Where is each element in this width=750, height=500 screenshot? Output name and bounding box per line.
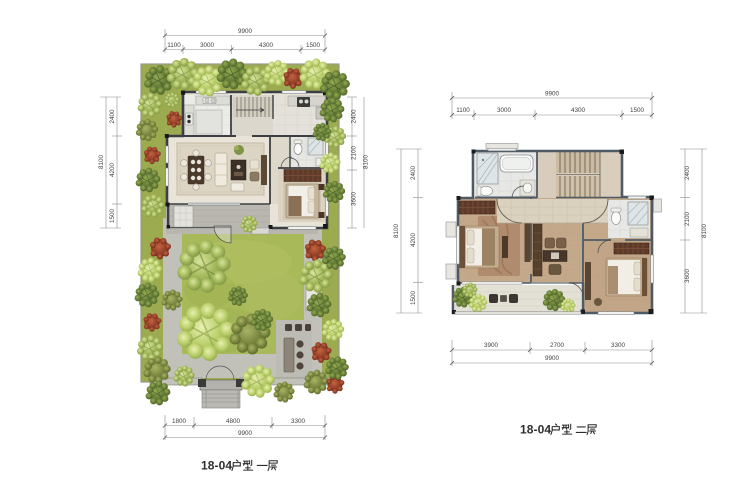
svg-text:2400: 2400: [351, 109, 358, 124]
svg-text:3300: 3300: [291, 418, 306, 425]
svg-text:1500: 1500: [306, 42, 321, 49]
svg-text:9900: 9900: [545, 91, 560, 98]
svg-text:3300: 3300: [611, 342, 626, 349]
svg-text:18-04: 18-04: [201, 459, 232, 473]
svg-text:4300: 4300: [571, 107, 586, 114]
svg-text:1100: 1100: [167, 42, 181, 49]
svg-text:2400: 2400: [109, 109, 116, 124]
svg-text:1500: 1500: [630, 107, 645, 114]
svg-text:18-04: 18-04: [520, 423, 551, 437]
svg-text:4800: 4800: [226, 418, 241, 425]
svg-text:3900: 3900: [484, 342, 499, 349]
svg-text:2100: 2100: [351, 146, 358, 161]
svg-text:8100: 8100: [393, 224, 400, 239]
svg-text:2400: 2400: [684, 166, 691, 181]
svg-text:1500: 1500: [109, 209, 116, 224]
svg-text:8100: 8100: [98, 155, 105, 170]
svg-text:9900: 9900: [545, 355, 560, 362]
svg-text:3000: 3000: [497, 107, 512, 114]
svg-text:2100: 2100: [684, 212, 691, 227]
svg-text:8100: 8100: [363, 155, 370, 170]
svg-text:4300: 4300: [259, 42, 274, 49]
svg-text:9900: 9900: [238, 430, 253, 437]
svg-text:3600: 3600: [684, 269, 691, 284]
svg-text:1800: 1800: [172, 418, 187, 425]
svg-text:3600: 3600: [351, 192, 358, 207]
svg-text:4200: 4200: [410, 233, 417, 248]
svg-text:4200: 4200: [109, 163, 116, 178]
svg-text:1100: 1100: [456, 107, 470, 114]
svg-text:2400: 2400: [410, 166, 417, 181]
svg-text:3000: 3000: [200, 42, 215, 49]
svg-text:9900: 9900: [238, 28, 253, 35]
svg-text:2700: 2700: [550, 342, 565, 349]
svg-text:1500: 1500: [410, 291, 417, 306]
svg-text:8100: 8100: [701, 224, 708, 239]
